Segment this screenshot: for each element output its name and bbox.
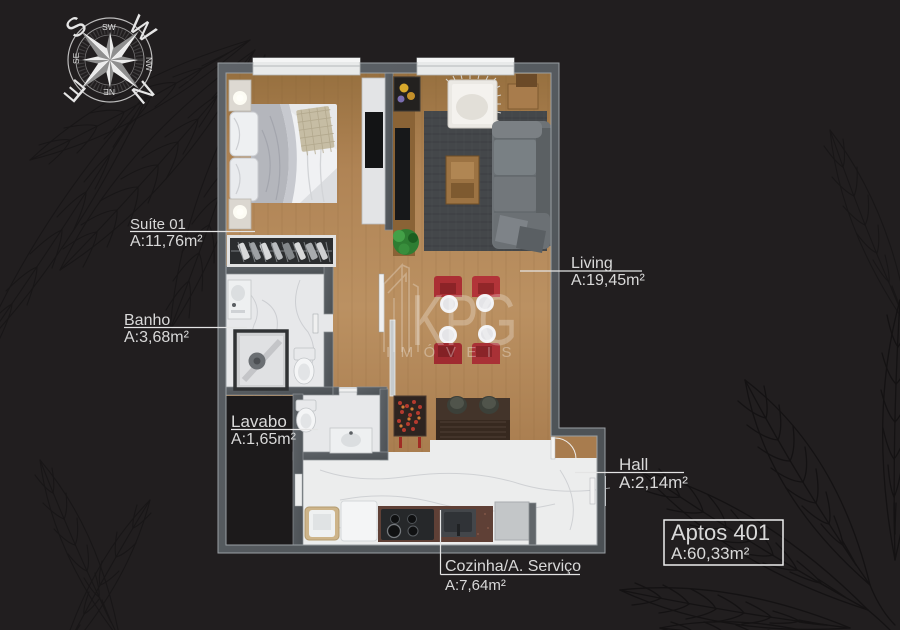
svg-text:A:1,65m²: A:1,65m² bbox=[231, 431, 297, 448]
svg-text:Banho: Banho bbox=[124, 312, 170, 329]
svg-text:Cozinha/A. Serviço: Cozinha/A. Serviço bbox=[445, 558, 581, 575]
svg-text:A:19,45m²: A:19,45m² bbox=[571, 272, 645, 289]
svg-text:A:7,64m²: A:7,64m² bbox=[445, 577, 506, 594]
svg-text:A:60,33m²: A:60,33m² bbox=[671, 544, 750, 563]
svg-text:Aptos 401: Aptos 401 bbox=[671, 520, 770, 545]
svg-text:NW: NW bbox=[144, 57, 154, 71]
svg-text:IMÓVEIS: IMÓVEIS bbox=[386, 344, 522, 361]
svg-text:Lavabo: Lavabo bbox=[231, 412, 287, 431]
svg-text:Suíte 01: Suíte 01 bbox=[130, 216, 186, 233]
svg-text:Hall: Hall bbox=[619, 455, 648, 474]
svg-text:SE: SE bbox=[71, 52, 81, 64]
svg-text:A:2,14m²: A:2,14m² bbox=[619, 473, 688, 492]
svg-text:NE: NE bbox=[103, 87, 115, 97]
svg-text:SW: SW bbox=[102, 22, 116, 32]
svg-text:Living: Living bbox=[571, 255, 613, 272]
svg-text:A:3,68m²: A:3,68m² bbox=[124, 329, 190, 346]
svg-text:A:11,76m²: A:11,76m² bbox=[130, 233, 203, 250]
